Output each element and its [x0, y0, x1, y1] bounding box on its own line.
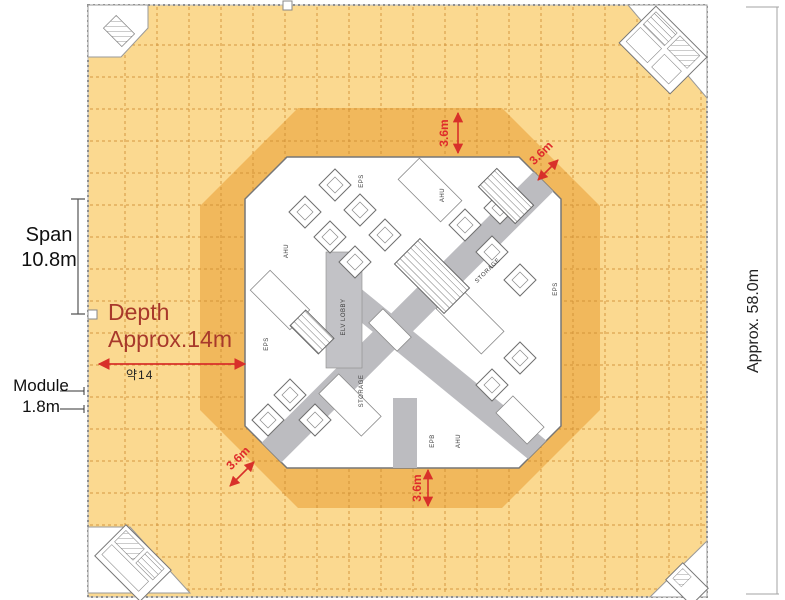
module-value-text: 1.8m	[0, 396, 82, 417]
room-label-epb: EPB	[430, 419, 436, 463]
module-label-text: Module	[0, 375, 82, 396]
band-top-dimension: 3.6m	[437, 103, 451, 163]
room-label-eps: EPS	[359, 159, 365, 203]
floor-plan-page: Span 10.8m Depth Approx.14m 약14 Module 1…	[0, 0, 785, 600]
module-dimension-label: Module 1.8m	[0, 375, 82, 417]
depth-value-text: Approx.14m	[108, 326, 232, 353]
overall-width-label: Approx. 58.0m	[745, 239, 763, 403]
room-label-ahu-2: AHU	[440, 173, 446, 217]
room-label-storage-2: STORAGE	[359, 369, 365, 413]
span-value-text: 10.8m	[6, 248, 92, 273]
grid-marker-left	[88, 310, 97, 319]
span-label-text: Span	[6, 223, 92, 248]
room-label-eps-2: EPS	[264, 322, 270, 366]
depth-note-text: 약14	[126, 366, 153, 383]
room-label-elv-lobby: ELV LOBBY	[341, 295, 347, 339]
room-label-ahu-3: AHU	[456, 419, 462, 463]
depth-dimension-label: Depth Approx.14m	[108, 299, 232, 353]
room-label-ahu: AHU	[284, 229, 290, 273]
service-core	[245, 157, 561, 468]
depth-label-text: Depth	[108, 299, 232, 326]
room-label-eps-3: EPS	[553, 267, 559, 311]
span-dimension-label: Span 10.8m	[6, 223, 92, 273]
band-bottom-dimension: 3.6m	[410, 458, 424, 518]
grid-marker-top	[283, 1, 292, 10]
